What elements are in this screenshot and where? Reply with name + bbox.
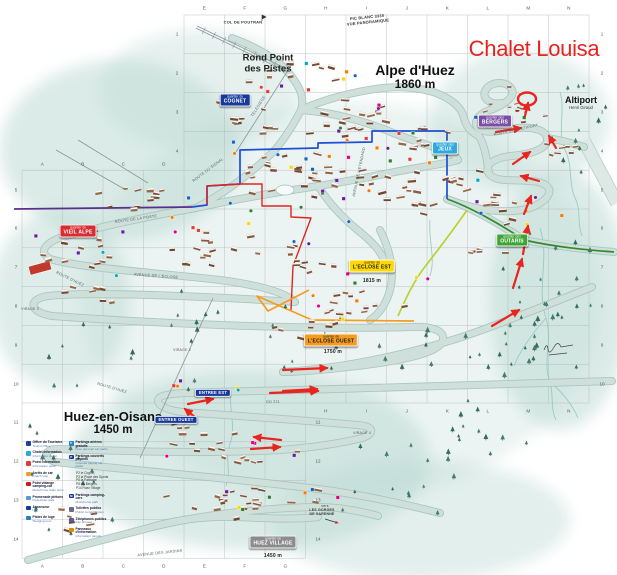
grid-label: 6 — [601, 226, 604, 231]
poi-marker — [292, 454, 296, 458]
poi-marker — [280, 84, 284, 88]
building — [507, 85, 511, 88]
huez-name: Huez-en-Oisans — [64, 410, 162, 424]
building — [288, 251, 293, 256]
building — [325, 323, 332, 328]
building — [96, 237, 102, 242]
legend-icon — [69, 528, 74, 533]
legend-text: Coach stop — [33, 475, 53, 478]
poi-marker — [237, 506, 241, 510]
legend-text: Sledging runs — [33, 520, 55, 523]
tree-trunk — [448, 454, 449, 455]
building — [420, 127, 427, 130]
snow-roof — [502, 251, 509, 252]
huez-en-oisans-label: Huez-en-Oisans 1450 m — [64, 410, 162, 436]
tree-trunk — [427, 462, 428, 463]
badge-name: ENTREE EST — [199, 391, 227, 395]
tree-trunk — [386, 456, 387, 457]
tree-trunk — [461, 417, 462, 418]
grid-label: K — [446, 6, 449, 11]
legend-text: Pay phones — [76, 521, 107, 524]
poi-marker — [411, 131, 415, 135]
grid-label: 11 — [14, 420, 19, 425]
tree-trunk — [576, 368, 577, 369]
legend-icon — [26, 496, 31, 501]
grid-label: 3 — [176, 110, 179, 115]
poi-marker — [225, 490, 229, 494]
col-de-poutran-flag-icon — [262, 15, 266, 21]
legend-text: Free open-air car parks — [76, 448, 110, 451]
poi-marker — [347, 156, 351, 160]
poi-marker — [266, 90, 270, 94]
tree-trunk — [605, 108, 606, 109]
building — [201, 238, 209, 242]
grid-label: A — [41, 564, 44, 569]
badge-entree-est: ENTREE EST — [195, 389, 231, 397]
tree-trunk — [536, 348, 537, 349]
poi-marker — [426, 277, 430, 281]
tree-trunk — [563, 162, 564, 163]
grid-label: 14 — [315, 536, 320, 541]
building — [324, 165, 332, 168]
map-text-label: RD 211 — [266, 400, 280, 404]
grid-label: H — [324, 6, 327, 11]
snow-roof — [489, 102, 492, 103]
badge-outaris: quartier desOUTARIS — [496, 234, 528, 247]
building — [341, 98, 349, 102]
poi-marker — [367, 189, 371, 193]
building — [406, 188, 411, 191]
poi-marker — [165, 454, 169, 458]
snow-roof — [491, 203, 499, 205]
grid-label: 2 — [176, 71, 179, 76]
snow-roof — [123, 186, 128, 188]
poi-marker — [232, 140, 236, 144]
poi-marker — [34, 234, 38, 238]
poi-marker — [121, 230, 125, 234]
poi-marker — [197, 229, 201, 233]
poi-marker — [345, 138, 349, 142]
building — [308, 325, 313, 328]
tree-crown — [525, 441, 528, 445]
badge-huez-village: quartier deHUEZ VILLAGE — [249, 536, 296, 549]
building — [502, 251, 509, 254]
tree-trunk — [379, 348, 380, 349]
altiport-subtitle: Henri Giraud — [565, 105, 597, 110]
building — [296, 165, 302, 169]
legend-text: Information panels — [76, 535, 110, 538]
tree-trunk — [590, 252, 591, 253]
building — [61, 290, 68, 294]
poi-marker — [311, 168, 315, 172]
grid-label: 2 — [601, 71, 604, 76]
building — [246, 501, 251, 504]
snow-roof — [565, 145, 570, 146]
building — [372, 303, 377, 307]
legend-text: Tourist Office — [33, 445, 63, 448]
building — [312, 61, 320, 66]
grid-label: 7 — [601, 265, 604, 270]
snow-roof — [348, 294, 353, 296]
tree-trunk — [112, 521, 113, 522]
tree-trunk — [83, 326, 84, 327]
poi-marker — [335, 179, 339, 183]
grid-label: 13 — [13, 498, 18, 503]
legend-text: Information chalet — [33, 455, 62, 458]
tree-trunk — [488, 369, 489, 370]
snow-roof — [508, 106, 512, 107]
poi-marker — [377, 103, 381, 107]
legend-item: PParkings couverts payantsCovered paying… — [69, 455, 109, 469]
building — [239, 116, 244, 119]
grid-label: B — [81, 564, 84, 569]
snow-roof — [189, 441, 195, 443]
badge-name: VIEIL ALPE — [64, 230, 93, 235]
building — [220, 499, 225, 504]
alpe-dhuez-label: Alpe d'Huez 1860 m — [375, 63, 455, 91]
badge-name: L'ECLOSE OUEST — [308, 339, 354, 344]
legend-icon: P — [69, 455, 74, 460]
poi-marker — [397, 132, 401, 136]
tree-trunk — [575, 143, 576, 144]
grid-label: 14 — [13, 536, 18, 541]
tree-trunk — [546, 306, 547, 307]
legend-icon — [26, 441, 31, 446]
snow-roof — [308, 325, 313, 326]
poi-marker — [77, 251, 81, 255]
tree-trunk — [385, 361, 386, 362]
building — [194, 448, 200, 452]
building — [260, 130, 267, 134]
poi-marker — [311, 488, 315, 492]
snow-roof — [324, 123, 330, 125]
grid-label: D — [162, 162, 165, 167]
tree-trunk — [197, 332, 198, 333]
poi-marker — [249, 209, 253, 213]
poi-marker — [345, 70, 349, 74]
tree-trunk — [360, 448, 361, 449]
legend-icon — [26, 451, 31, 456]
tree-trunk — [490, 455, 491, 456]
legend-text: Covered paying car parks — [76, 462, 110, 469]
grid-label: 8 — [601, 304, 604, 309]
tree-trunk — [30, 427, 31, 428]
grid-label: I — [366, 409, 367, 414]
building — [499, 208, 507, 212]
tree-trunk — [559, 295, 560, 296]
building — [339, 168, 345, 173]
building — [346, 310, 352, 314]
poi-marker — [475, 200, 479, 204]
poi-marker — [305, 62, 309, 66]
legend-icon: P — [69, 441, 74, 446]
poi-marker — [303, 491, 307, 495]
legend-icon — [26, 461, 31, 466]
snow-roof — [200, 432, 207, 434]
building — [521, 120, 526, 124]
badge-prefix: quartier des — [436, 144, 454, 147]
alpe-dhuez-name: Alpe d'Huez — [375, 63, 455, 78]
legend-parking-list: P2 le CognetP3 la Place des SportsP5 la … — [76, 472, 109, 491]
building — [476, 249, 482, 252]
poi-marker — [479, 211, 483, 215]
building — [252, 506, 258, 510]
grid-label: 1 — [176, 32, 179, 37]
legend-item: Promenade piétonsPedestrian walk — [26, 496, 66, 503]
legend-item: Chalet informationInformation chalet — [26, 451, 66, 458]
grid-label: G — [284, 564, 288, 569]
badge-name: BERGERS — [482, 120, 508, 125]
grid-label: 12 — [13, 459, 18, 464]
grid-label: E — [203, 564, 206, 569]
tree-crown — [35, 431, 38, 435]
tree-trunk — [581, 173, 582, 174]
grid-label: 9 — [601, 342, 604, 347]
poi-marker — [534, 196, 538, 200]
tree-trunk — [285, 308, 286, 309]
badge-cognet: quartier duCOGNET — [220, 94, 251, 107]
grid-label: 3 — [601, 110, 604, 115]
badge-bergers: quartier desBERGERS — [478, 115, 512, 128]
map-text-label: 1750 m — [324, 349, 342, 355]
building — [293, 263, 301, 266]
building — [200, 432, 207, 436]
poi-marker — [179, 379, 183, 383]
poi-marker — [307, 242, 311, 246]
poi-marker — [304, 157, 308, 161]
building — [109, 299, 115, 304]
tree-trunk — [577, 308, 578, 309]
snow-roof — [384, 198, 391, 200]
legend-text: Motorhome park — [76, 501, 110, 504]
badge-name: ENTREE OUEST — [159, 418, 194, 422]
poi-marker — [187, 196, 191, 200]
rond-point-des-pistes-label: Rond Point des Pistes — [243, 54, 294, 75]
poi-marker — [233, 152, 237, 156]
snow-roof — [507, 85, 511, 86]
poi-marker — [386, 147, 390, 151]
tree-trunk — [218, 314, 219, 315]
building — [147, 197, 154, 201]
poi-marker — [408, 157, 412, 161]
building — [244, 458, 249, 462]
snow-roof — [294, 259, 300, 260]
poi-marker — [299, 205, 303, 209]
grid-label: 12 — [315, 459, 320, 464]
resort-map: Chalet Louisa Alpe d'Huez 1860 m Rond Po… — [0, 0, 617, 575]
legend-text: Information point — [33, 465, 60, 468]
grid-label: J — [406, 6, 408, 11]
snow-roof — [376, 111, 381, 113]
legend-item: Arrêts de carCoach stop — [26, 472, 66, 479]
tree-trunk — [504, 377, 505, 378]
building — [123, 186, 128, 189]
grid-label: L — [487, 409, 490, 414]
tree-trunk — [437, 514, 438, 515]
tree-trunk — [454, 478, 455, 479]
poi-marker — [172, 384, 176, 388]
building — [246, 80, 253, 83]
snow-roof — [239, 116, 244, 118]
badge-prefix: quartier des — [482, 117, 508, 120]
tree-icon — [35, 431, 38, 436]
building — [295, 449, 300, 452]
grid-label: I — [366, 6, 367, 11]
building — [252, 498, 259, 501]
grid-label: B — [81, 162, 84, 167]
poi-marker — [241, 508, 245, 512]
legend-item: Toilettes publicsPublic conveniences — [69, 507, 109, 514]
badge-name: OUTARIS — [500, 239, 524, 244]
building — [331, 77, 339, 81]
grid-label: 10 — [599, 381, 604, 386]
building — [130, 207, 137, 212]
legend-item: Téléphones publicsPay phones — [69, 518, 109, 525]
poi-marker — [307, 88, 311, 92]
snow-roof — [569, 151, 574, 153]
map-text-label: VIRAGE 4 — [353, 431, 371, 435]
tree-trunk — [426, 346, 427, 347]
building — [147, 188, 154, 192]
grid-label: M — [526, 6, 530, 11]
grid-label: D — [162, 564, 165, 569]
terrain-wash — [100, 30, 300, 150]
legend-icon — [69, 507, 74, 512]
poi-marker — [173, 230, 177, 234]
altiport-label: Altiport Henri Giraud — [565, 96, 597, 110]
snow-roof — [309, 319, 315, 321]
snow-roof — [203, 230, 209, 232]
tree-trunk — [534, 338, 535, 339]
tree-trunk — [205, 316, 206, 317]
building — [177, 426, 182, 429]
grid-label: N — [567, 6, 570, 11]
badge-jeux: quartier desJEUX — [432, 142, 458, 155]
building — [491, 203, 499, 206]
snow-roof — [244, 458, 249, 460]
poi-marker — [428, 161, 432, 165]
building — [565, 145, 570, 148]
building — [319, 66, 325, 70]
tree-trunk — [188, 391, 189, 392]
tree-trunk — [502, 439, 503, 440]
badge-name: COGNET — [224, 99, 247, 104]
poi-marker — [247, 222, 251, 226]
poi-marker — [353, 281, 357, 285]
tree-trunk — [431, 366, 432, 367]
building — [328, 64, 336, 70]
building — [106, 255, 112, 259]
badge-vieil-alpe: quartier duVIEIL ALPE — [60, 225, 97, 238]
grid-label: N — [567, 409, 570, 414]
grid-label: 7 — [15, 265, 18, 270]
tree-trunk — [479, 433, 480, 434]
legend-parking-entry: P14 Huez Village — [76, 487, 109, 491]
building — [384, 198, 391, 201]
grid-label: 8 — [15, 304, 18, 309]
grid-label: A — [41, 162, 44, 167]
grid-label: C — [122, 162, 125, 167]
tree-trunk — [529, 363, 530, 364]
snow-roof — [293, 263, 301, 265]
badge-l-eclose-est: quartier deL'ECLOSE EST — [349, 260, 395, 273]
legend-text: Lift — [33, 509, 50, 512]
legend-text: Motorhome drain point — [33, 489, 67, 492]
building — [287, 500, 295, 503]
poi-marker — [342, 77, 346, 81]
badge-prefix: quartier de — [353, 262, 391, 265]
huez-elevation: 1450 m — [64, 424, 162, 436]
building — [348, 294, 353, 298]
grid-label: E — [203, 6, 206, 11]
poi-marker — [289, 165, 293, 169]
grid-label: J — [406, 409, 408, 414]
tree-trunk — [191, 343, 192, 344]
grid-label: M — [526, 409, 530, 414]
poi-marker — [339, 126, 343, 130]
building — [230, 116, 238, 121]
building — [203, 230, 209, 234]
building — [359, 182, 364, 186]
tree-trunk — [534, 350, 535, 351]
legend-item: Panneaux d'informationInformation panels — [69, 528, 109, 539]
poi-marker — [341, 317, 345, 321]
tree-trunk — [427, 332, 428, 333]
tree-trunk — [503, 270, 504, 271]
legend-icon — [69, 518, 74, 523]
building — [366, 121, 373, 124]
poi-marker — [251, 441, 255, 445]
poi-marker — [415, 276, 419, 280]
poi-marker — [115, 274, 119, 278]
tree-trunk — [598, 123, 599, 124]
grid-label: F — [243, 6, 246, 11]
badge-prefix: quartier du — [224, 96, 247, 99]
building — [407, 178, 416, 183]
tree-icon — [28, 423, 32, 428]
poi-marker — [327, 155, 331, 159]
tree-trunk — [196, 324, 197, 325]
snow-roof — [169, 247, 174, 249]
tree-icon — [525, 441, 528, 446]
poi-marker — [342, 197, 346, 201]
tree-trunk — [558, 316, 559, 317]
building — [251, 486, 258, 489]
building — [294, 259, 300, 262]
building — [508, 106, 512, 108]
tree-trunk — [132, 354, 133, 355]
poi-marker — [353, 74, 357, 78]
tree-trunk — [452, 431, 453, 432]
snow-roof — [406, 188, 411, 190]
badge-prefix: quartier de — [253, 538, 292, 541]
map-text-label: VIRAGE 3 — [21, 307, 39, 311]
poi-marker — [321, 189, 325, 193]
snow-roof — [135, 204, 141, 206]
poi-marker — [176, 384, 180, 388]
poi-marker — [476, 178, 480, 182]
badge-prefix: quartier de — [308, 336, 354, 339]
legend-text: Pedestrian walk — [33, 499, 64, 502]
tree-trunk — [575, 244, 576, 245]
grid-label: 5 — [15, 187, 18, 192]
poi-marker — [347, 220, 351, 224]
legend-icon: M — [69, 494, 74, 499]
tree-trunk — [534, 326, 535, 327]
badge-entree-ouest: ENTREE OUEST — [155, 416, 198, 424]
building — [325, 170, 333, 175]
badge-prefix: quartier des — [500, 236, 524, 239]
